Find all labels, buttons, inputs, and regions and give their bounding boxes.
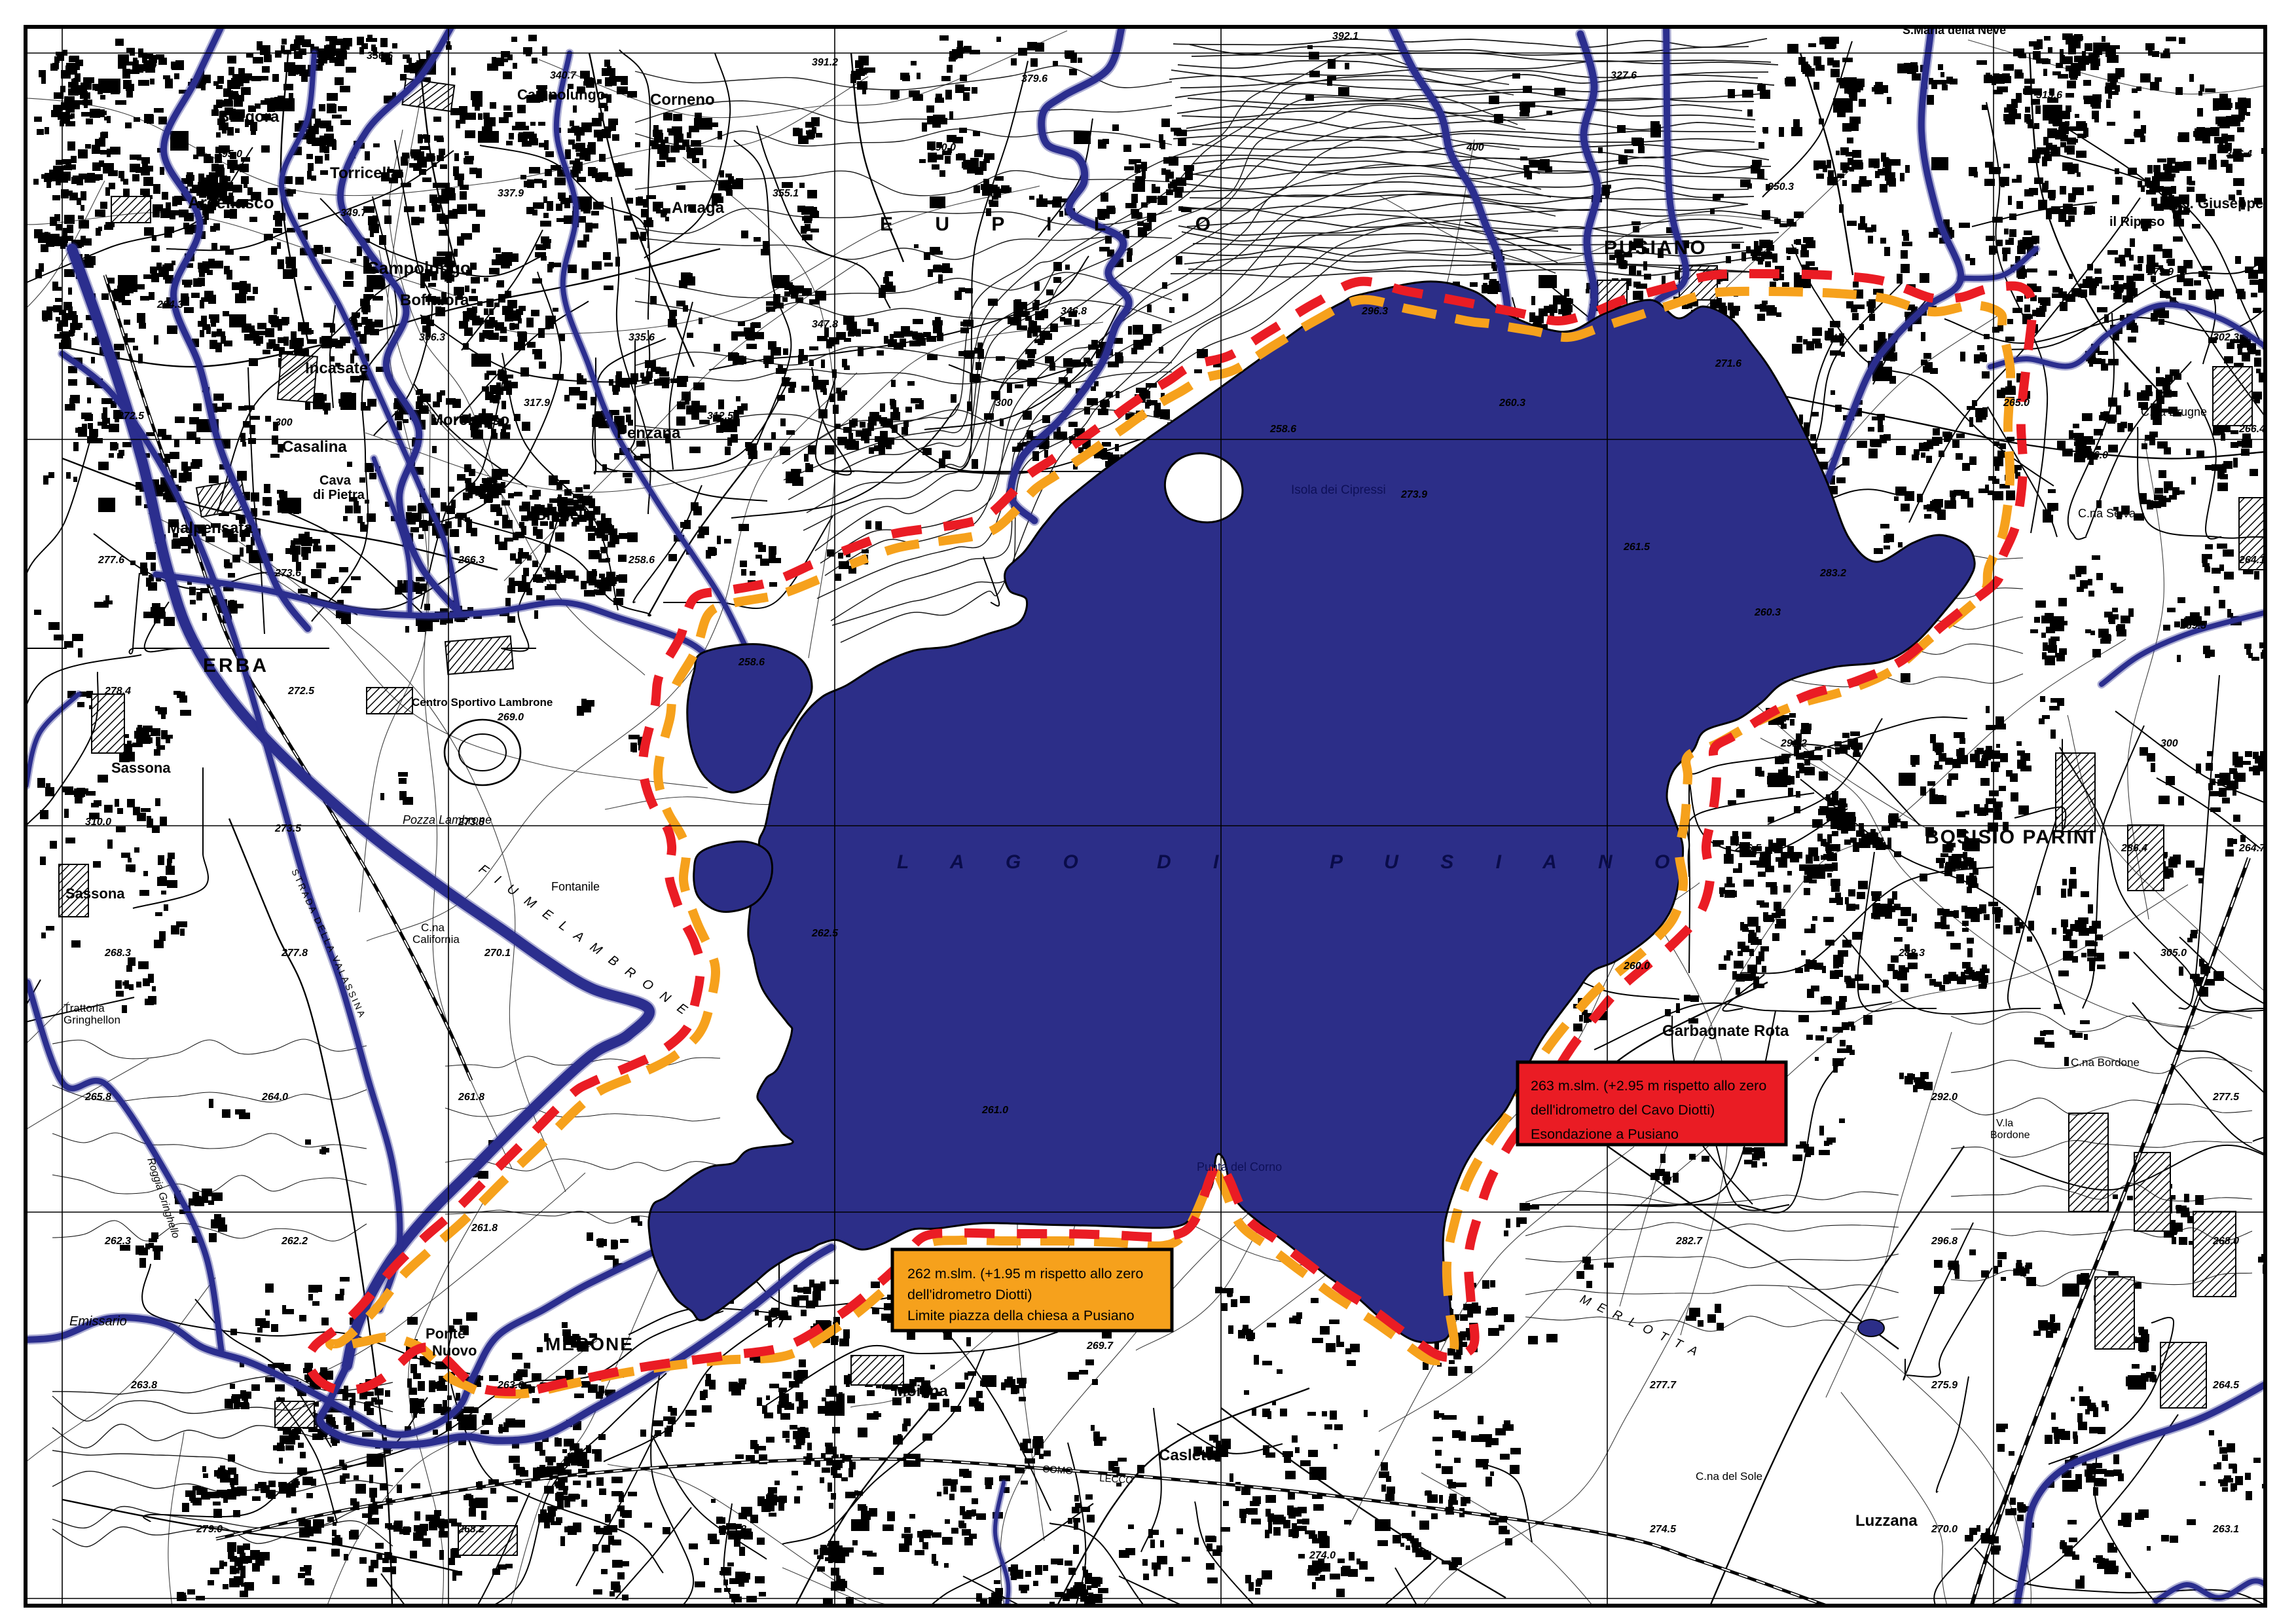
svg-text:S.Maria della Neve: S.Maria della Neve (1903, 24, 2006, 37)
svg-text:262.2: 262.2 (281, 1236, 308, 1247)
svg-text:Punta del Corno: Punta del Corno (1197, 1160, 1282, 1173)
svg-text:264.0: 264.0 (261, 1092, 288, 1103)
svg-text:347.8: 347.8 (812, 319, 838, 330)
svg-text:268.0: 268.0 (2212, 1236, 2239, 1247)
svg-text:C.na del Sole: C.na del Sole (1696, 1470, 1762, 1483)
svg-text:Emissario: Emissario (69, 1314, 127, 1329)
svg-text:266.4: 266.4 (2238, 424, 2265, 435)
svg-text:BOSISIO PARINI: BOSISIO PARINI (1925, 826, 2096, 848)
svg-text:il Riposo: il Riposo (2109, 215, 2164, 229)
svg-text:PUSIANO: PUSIANO (1604, 237, 1707, 259)
svg-text:302.3: 302.3 (2213, 332, 2239, 343)
svg-text:286.4: 286.4 (2121, 843, 2147, 854)
svg-text:264.1: 264.1 (2238, 555, 2265, 566)
svg-text:C.na Bordone: C.na Bordone (2071, 1056, 2140, 1069)
svg-text:273.9: 273.9 (1400, 489, 1427, 500)
svg-text:Corneno: Corneno (650, 91, 715, 109)
svg-text:317.9: 317.9 (524, 397, 550, 409)
svg-text:261.0: 261.0 (981, 1105, 1008, 1116)
svg-text:261.8: 261.8 (471, 1223, 498, 1234)
svg-text:Campolungo: Campolungo (517, 86, 605, 103)
svg-text:355.1: 355.1 (773, 188, 799, 199)
svg-text:296.3: 296.3 (1361, 306, 1388, 317)
svg-text:ERBA: ERBA (203, 655, 269, 676)
svg-text:271.6: 271.6 (1715, 358, 1741, 369)
svg-text:272.5: 272.5 (117, 411, 145, 422)
svg-text:266.3: 266.3 (458, 555, 484, 566)
svg-text:260.3: 260.3 (1754, 607, 1781, 618)
svg-text:277.8: 277.8 (281, 948, 308, 959)
svg-text:Torricella: Torricella (330, 164, 400, 182)
svg-text:275.8: 275.8 (720, 1524, 746, 1535)
svg-text:312.5: 312.5 (707, 411, 734, 422)
svg-text:Arzaga: Arzaga (672, 199, 725, 217)
svg-text:258.6: 258.6 (1269, 424, 1296, 435)
svg-text:E U P I L I O: E U P I L I O (880, 213, 1229, 235)
svg-text:Penzana: Penzana (617, 424, 681, 442)
svg-text:279.9: 279.9 (2147, 267, 2174, 278)
svg-text:Trattoria: Trattoria (64, 1002, 105, 1014)
svg-text:310.0: 310.0 (85, 817, 111, 828)
svg-text:Sassona: Sassona (111, 760, 171, 776)
svg-text:Morchiuso: Morchiuso (430, 411, 509, 429)
svg-text:273.5: 273.5 (274, 823, 302, 834)
svg-text:Cava: Cava (319, 473, 352, 488)
svg-text:284.3: 284.3 (156, 299, 183, 310)
svg-text:265.0: 265.0 (2003, 397, 2030, 409)
svg-text:392.1: 392.1 (1332, 31, 1358, 42)
svg-text:Incasate: Incasate (305, 360, 368, 377)
svg-text:313.6: 313.6 (2036, 90, 2062, 101)
svg-text:Casalina: Casalina (282, 438, 347, 456)
svg-text:California: California (412, 933, 460, 946)
svg-text:263.8: 263.8 (130, 1380, 157, 1391)
svg-text:277.6: 277.6 (98, 555, 124, 566)
svg-text:Campolungo: Campolungo (367, 258, 471, 278)
svg-text:300: 300 (2160, 738, 2178, 749)
svg-text:258.6: 258.6 (628, 555, 655, 566)
svg-text:262.5: 262.5 (811, 928, 839, 939)
svg-text:270.0: 270.0 (1931, 1524, 1958, 1535)
svg-text:400: 400 (1466, 142, 1484, 153)
svg-text:269.7: 269.7 (1086, 1340, 1114, 1352)
svg-text:Nuovo: Nuovo (432, 1342, 477, 1359)
svg-text:300: 300 (995, 397, 1013, 409)
svg-text:366.4: 366.4 (2226, 149, 2252, 160)
svg-text:295.0: 295.0 (215, 149, 242, 160)
svg-text:L A G O: L A G O (897, 851, 1097, 873)
svg-text:278.4: 278.4 (104, 686, 131, 697)
svg-text:Arcellasco: Arcellasco (188, 193, 274, 212)
svg-text:273.8: 273.8 (458, 817, 484, 828)
svg-text:260.3: 260.3 (1499, 397, 1525, 409)
svg-text:Casletto: Casletto (1159, 1447, 1221, 1464)
svg-text:Isola dei Cipressi: Isola dei Cipressi (1291, 483, 1386, 497)
svg-text:356.6: 356.6 (367, 50, 393, 62)
svg-text:305.0: 305.0 (2160, 948, 2187, 959)
svg-text:327.6: 327.6 (1611, 70, 1637, 81)
svg-text:289.5: 289.5 (2179, 620, 2207, 631)
svg-text:D I: D I (1157, 851, 1237, 873)
svg-text:350.3: 350.3 (1768, 181, 1794, 193)
svg-text:275.9: 275.9 (1931, 1380, 1958, 1391)
svg-text:283.2: 283.2 (1819, 568, 1846, 579)
svg-text:349.7: 349.7 (340, 208, 367, 219)
svg-text:291.2: 291.2 (1780, 738, 1807, 749)
svg-text:P U S I A N O: P U S I A N O (1330, 851, 1688, 873)
svg-text:264.7: 264.7 (2238, 843, 2266, 854)
svg-text:340.7: 340.7 (550, 70, 577, 81)
svg-text:277.7: 277.7 (1649, 1380, 1677, 1391)
svg-text:Centro Sportivo Lambrone: Centro Sportivo Lambrone (412, 696, 553, 709)
svg-text:379.6: 379.6 (1021, 73, 1048, 84)
svg-text:279.0: 279.0 (196, 1524, 223, 1535)
svg-text:260.0: 260.0 (1623, 961, 1650, 972)
svg-text:Garbagnate Rota: Garbagnate Rota (1662, 1022, 1789, 1040)
svg-text:Limite piazza della chiesa a P: Limite piazza della chiesa a Pusiano (907, 1308, 1135, 1323)
svg-text:270.1: 270.1 (484, 948, 511, 959)
svg-text:391.2: 391.2 (812, 57, 838, 68)
svg-text:263 m.slm. (+2.95 m rispetto a: 263 m.slm. (+2.95 m rispetto allo zero (1531, 1078, 1766, 1094)
svg-text:di Pietra: di Pietra (313, 488, 365, 502)
svg-text:273.6: 273.6 (274, 568, 301, 579)
svg-text:292.0: 292.0 (1931, 1092, 1958, 1103)
svg-text:Malpensata: Malpensata (167, 519, 253, 537)
svg-text:COMO: COMO (1042, 1464, 1074, 1477)
svg-text:LECCO: LECCO (1099, 1473, 1134, 1486)
svg-text:268.3: 268.3 (104, 948, 131, 959)
svg-text:Sassona: Sassona (65, 885, 125, 902)
svg-text:Brugora: Brugora (218, 108, 280, 126)
svg-text:265.8: 265.8 (84, 1092, 111, 1103)
svg-text:390.0: 390.0 (930, 142, 956, 153)
svg-text:dell'idrometro Diotti): dell'idrometro Diotti) (907, 1287, 1032, 1302)
svg-text:263.6: 263.6 (497, 1380, 524, 1391)
svg-text:262.3: 262.3 (104, 1236, 131, 1247)
svg-text:Luzzana: Luzzana (1855, 1512, 1918, 1530)
svg-text:288.3: 288.3 (1898, 948, 1925, 959)
svg-text:274.5: 274.5 (1649, 1524, 1677, 1535)
svg-text:306.3: 306.3 (419, 332, 445, 343)
svg-text:C.na Selva: C.na Selva (2078, 507, 2136, 520)
svg-text:MERONE: MERONE (545, 1334, 634, 1354)
svg-text:282.7: 282.7 (1675, 1236, 1703, 1247)
svg-text:dell'idrometro del Cavo Diotti: dell'idrometro del Cavo Diotti) (1531, 1102, 1715, 1118)
svg-text:306.0: 306.0 (2082, 450, 2108, 461)
svg-text:Esondazione a Pusiano: Esondazione a Pusiano (1531, 1126, 1679, 1142)
svg-text:300: 300 (275, 417, 293, 428)
svg-text:V.la: V.la (1996, 1118, 2013, 1129)
svg-text:346.8: 346.8 (1061, 306, 1087, 317)
svg-text:Gringhellon: Gringhellon (64, 1014, 120, 1026)
svg-text:268.2: 268.2 (458, 1524, 484, 1535)
svg-text:337.9: 337.9 (498, 188, 524, 199)
svg-text:S. Giuseppe: S. Giuseppe (2180, 195, 2263, 212)
svg-text:272.5: 272.5 (287, 686, 315, 697)
svg-text:258.6: 258.6 (738, 657, 765, 668)
svg-text:264.5: 264.5 (2212, 1380, 2240, 1391)
svg-text:274.0: 274.0 (1309, 1550, 1336, 1561)
svg-text:261.8: 261.8 (458, 1092, 484, 1103)
svg-text:335.6: 335.6 (629, 332, 655, 343)
svg-text:277.5: 277.5 (2212, 1092, 2240, 1103)
svg-text:296.8: 296.8 (1931, 1236, 1958, 1247)
svg-text:269.0: 269.0 (497, 712, 524, 723)
svg-text:Ponte: Ponte (426, 1325, 465, 1342)
svg-text:263.1: 263.1 (2212, 1524, 2239, 1535)
svg-text:266.5: 266.5 (1734, 843, 1762, 854)
svg-text:262 m.slm. (+1.95 m rispetto a: 262 m.slm. (+1.95 m rispetto allo zero (907, 1266, 1143, 1282)
svg-text:Bordone: Bordone (1990, 1130, 2030, 1141)
svg-text:Boffalora: Boffalora (400, 291, 469, 309)
svg-text:261.5: 261.5 (1623, 542, 1650, 553)
svg-text:Bindella: Bindella (535, 506, 596, 524)
svg-text:Moiana: Moiana (894, 1382, 948, 1400)
svg-text:C.na: C.na (421, 921, 445, 934)
svg-text:C.na Brugne: C.na Brugne (2141, 405, 2207, 418)
svg-text:Fontanile: Fontanile (551, 880, 600, 893)
